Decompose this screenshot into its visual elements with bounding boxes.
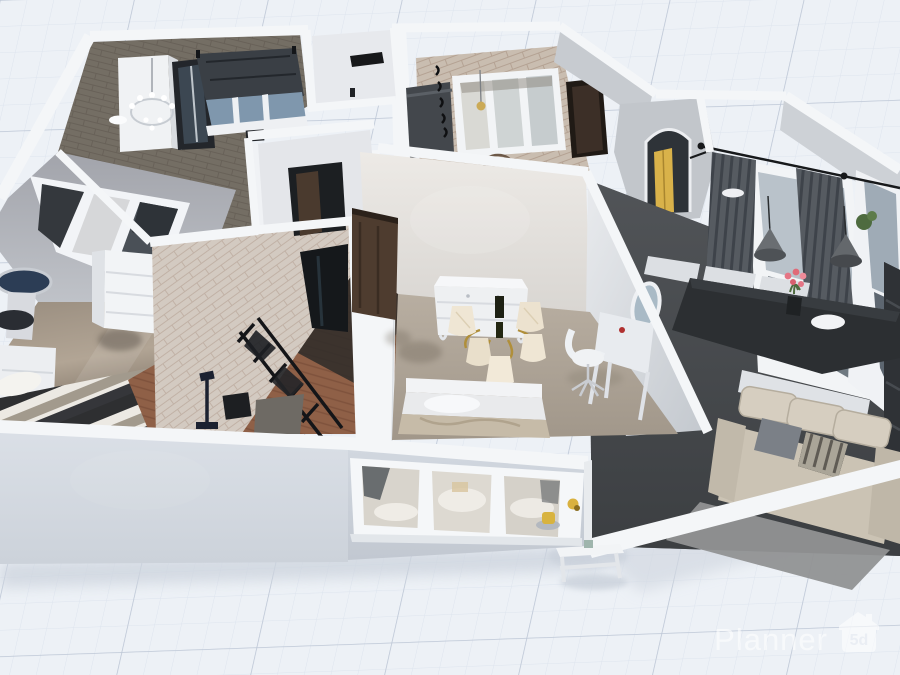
brown-wardrobe-door	[352, 208, 398, 320]
dark-stool	[222, 392, 251, 419]
watermark-brand: Planner	[714, 622, 828, 657]
glass-partition	[452, 68, 566, 158]
ceiling-light	[722, 189, 744, 198]
render-viewport: Planner 5d	[0, 0, 900, 675]
gray-chair	[254, 394, 304, 434]
arched-doorway	[646, 129, 690, 214]
double-bed	[398, 378, 550, 438]
balcony-glazing	[196, 46, 308, 136]
white-dresser	[434, 276, 528, 342]
white-wardrobe	[118, 55, 172, 152]
ceiling-lamp	[109, 116, 127, 125]
watermark-logo-text: 5d	[850, 632, 869, 649]
white-plate	[811, 315, 845, 330]
front-window	[350, 458, 584, 546]
